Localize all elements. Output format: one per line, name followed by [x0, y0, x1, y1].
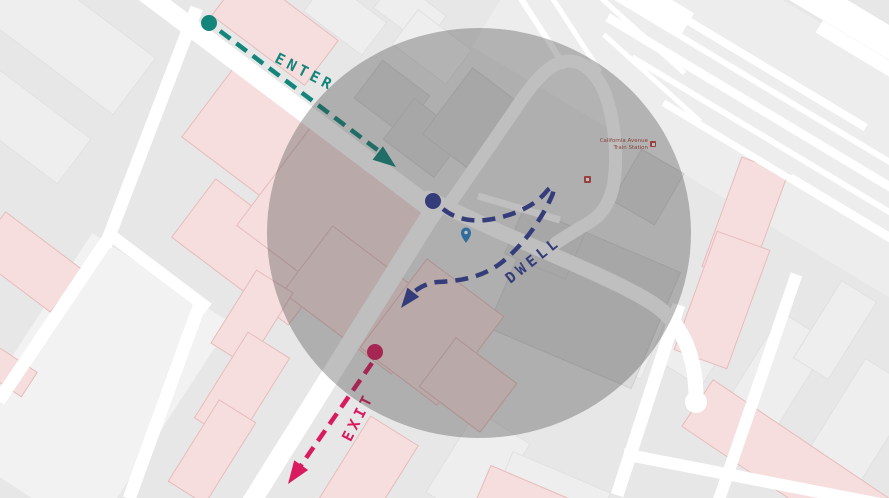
geofence-map-figure: California Avenue Train Station ENTER DW… — [0, 0, 889, 498]
geofence-radius-overlay — [267, 28, 691, 438]
exit-arrowhead-icon — [281, 460, 308, 489]
enter-start-dot — [201, 15, 217, 31]
